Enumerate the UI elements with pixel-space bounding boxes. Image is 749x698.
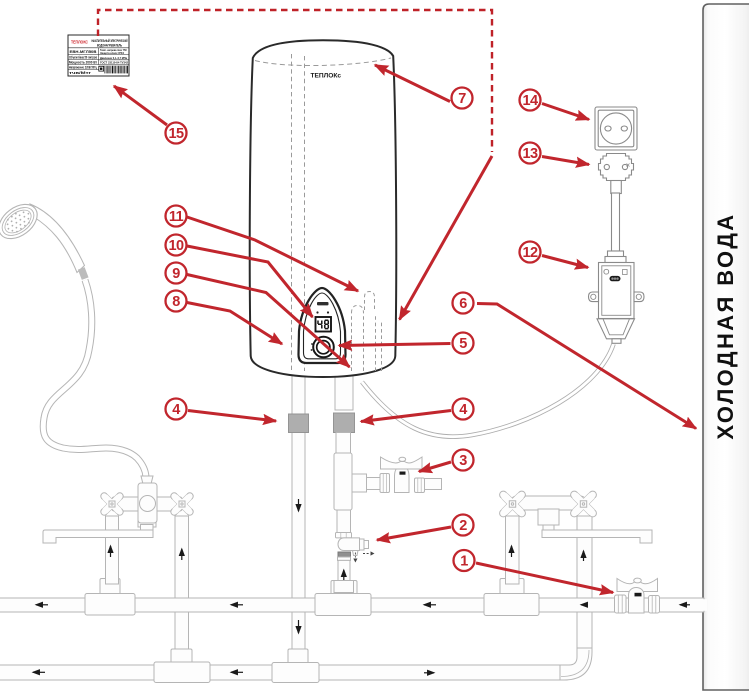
svg-text:5: 5 — [459, 336, 467, 352]
svg-text:2: 2 — [459, 518, 467, 534]
svg-text:13: 13 — [523, 146, 538, 162]
svg-text:ТЕПЛОКС: ТЕПЛОКС — [71, 40, 89, 45]
svg-text:ГОСТ 23110-84 ТУ342: ГОСТ 23110-84 ТУ342 — [100, 61, 128, 65]
svg-text:ЕВН-МГЛ50В: ЕВН-МГЛ50В — [70, 50, 97, 54]
svg-text:4: 4 — [172, 402, 180, 418]
svg-text:тчв/Мтг: тчв/Мтг — [69, 70, 91, 75]
svg-text:8: 8 — [172, 294, 180, 310]
svg-text:10: 10 — [169, 238, 184, 254]
svg-text:Мощность 2000 Вт: Мощность 2000 Вт — [69, 61, 97, 65]
svg-text:6: 6 — [459, 296, 467, 312]
svg-text:1: 1 — [460, 554, 468, 570]
svg-text:9: 9 — [172, 266, 180, 282]
svg-text:14: 14 — [523, 93, 538, 109]
svg-text:12: 12 — [523, 245, 538, 261]
svg-text:15: 15 — [169, 126, 184, 142]
svg-text:ВОДОНАГРЕВАТЕЛЬ: ВОДОНАГРЕВАТЕЛЬ — [97, 43, 122, 47]
svg-text:11: 11 — [169, 209, 184, 225]
svg-text:7: 7 — [458, 91, 466, 107]
svg-text:Объём бака 50 литров: Объём бака 50 литров — [69, 56, 97, 60]
svg-text:ХОЛОДНАЯ ВОДА: ХОЛОДНАЯ ВОДА — [713, 212, 738, 439]
svg-text:ТЕПЛОКс: ТЕПЛОКс — [311, 73, 342, 80]
svg-text:Защита класс IPX4: Защита класс IPX4 — [100, 51, 124, 55]
svg-text:4: 4 — [459, 402, 467, 418]
svg-text:3: 3 — [459, 453, 467, 469]
svg-text:Давление 0,1–0,7 МПа: Давление 0,1–0,7 МПа — [100, 56, 127, 60]
